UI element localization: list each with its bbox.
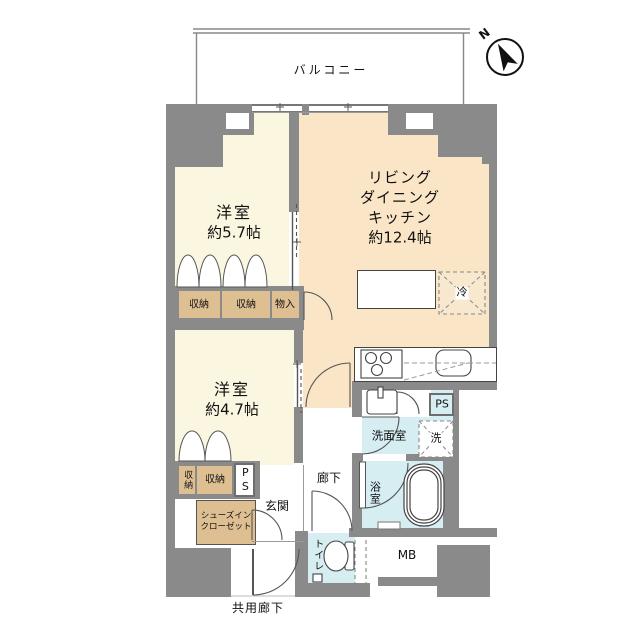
washer-label: 洗: [430, 433, 443, 446]
ldk-label-2: ダイニング: [360, 189, 440, 206]
bedroom1-area: 約5.7帖: [207, 224, 261, 241]
mb-label: MB: [398, 549, 417, 563]
closet2b-label: 収納: [205, 474, 225, 486]
sic-door: [252, 510, 282, 540]
ldk-label-3: キッチン: [368, 209, 432, 226]
pillar-top-left: [166, 104, 223, 167]
bedroom2-name: 洋室: [214, 381, 250, 399]
ldk-label-1: リビング: [368, 169, 432, 186]
entrance-label: 玄関: [265, 500, 289, 514]
wall-bathroom-right: [443, 461, 459, 528]
ps-upper-box: [429, 393, 454, 416]
sliding-door-zone-bedroom2: [294, 363, 303, 407]
washroom-vanity-zone: [362, 390, 431, 417]
wall-divider-top: [289, 112, 299, 212]
toilet-label: トイレ: [311, 539, 323, 572]
sic-label-1: シューズイン: [201, 512, 252, 522]
wall-hall-washroom-a: [352, 390, 362, 417]
hallway-label: 廊下: [317, 472, 341, 486]
pillar-top-right: [438, 104, 497, 157]
bedroom1-name: 洋室: [216, 204, 252, 222]
wall-bedroom2-right-b: [294, 407, 303, 463]
common-corridor-label: 共用廊下: [232, 602, 284, 616]
pillar-mb: [437, 545, 490, 597]
window-notch-right: [406, 113, 433, 129]
front-door: [253, 549, 299, 595]
window-notch-left: [226, 113, 249, 129]
bedroom2-area: 約4.7帖: [205, 401, 259, 418]
kitchen-counter: [354, 347, 497, 382]
closet1b-label: 収納: [236, 299, 256, 311]
window-base-line: [252, 112, 389, 113]
bath-door-gap: [363, 454, 406, 461]
wall-bedroom2-right-a: [294, 330, 303, 363]
compass-label: N: [476, 25, 493, 42]
wall-bath-bottom: [349, 528, 497, 537]
closet2a-label: 収納: [182, 470, 192, 490]
toilet-door: [312, 491, 352, 531]
balcony-label: バルコニー: [294, 64, 369, 78]
window-ldk: [309, 104, 388, 112]
wall-toilet-bottom: [295, 583, 370, 597]
wall-bottom-left-block: [166, 548, 231, 597]
bathroom-label: 浴室: [368, 481, 381, 505]
mb-strip: [378, 577, 438, 586]
ldk-floor-nook: [303, 381, 352, 408]
ldk-sideboard: [357, 270, 436, 309]
window-bedroom1: [252, 104, 302, 112]
ldk-area: 約12.4帖: [368, 229, 431, 246]
wall-kitchen-bottom: [352, 381, 497, 390]
genkan-step-line-v: [303, 465, 304, 531]
wall-top-stub: [302, 104, 309, 115]
fridge-label: 冷: [456, 287, 469, 300]
sic-label-2: クローゼット: [200, 523, 251, 533]
sliding-door-zone-bedroom1: [289, 212, 299, 290]
floor-plan: N: [0, 0, 640, 640]
monoire-label: 物入: [275, 299, 295, 311]
closet1a-label: 収納: [189, 299, 209, 311]
washroom-label: 洗面室: [372, 429, 407, 442]
compass-icon: N: [476, 25, 523, 75]
wall-hall-bath: [352, 453, 362, 531]
toilet-partition-dashed: [355, 533, 366, 583]
ps-lower-label: PS: [238, 466, 251, 494]
genkan-step-line-h: [252, 541, 304, 542]
